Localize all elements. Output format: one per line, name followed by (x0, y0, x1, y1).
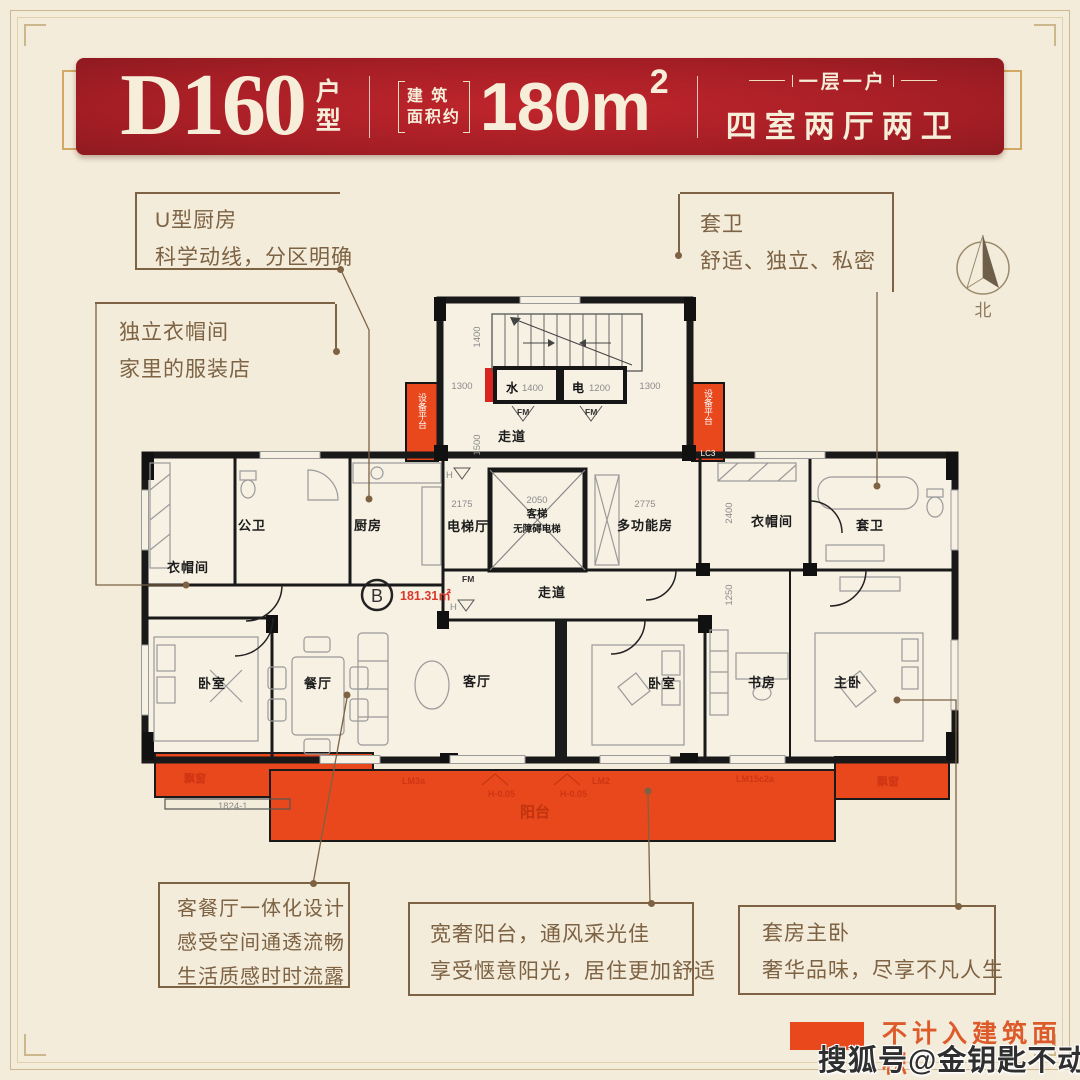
tagline-tick-right (893, 75, 894, 87)
room-elevator-hall: 电梯厅 (447, 519, 489, 534)
callout-kitchen-line1: U型厨房 (155, 202, 340, 239)
dim-1300b: 1300 (639, 381, 660, 392)
equip-right-label: 设备平台 (703, 389, 713, 426)
frame-corner-tr (1034, 24, 1056, 46)
equip-left-label: 设备平台 (417, 393, 427, 430)
room-study: 书房 (748, 675, 776, 690)
unit-model-suffix-char2: 型 (316, 107, 341, 136)
callout-living-dot (310, 880, 317, 887)
elec-shaft-dim: 1200 (589, 383, 610, 394)
room-bedroom-mid: 卧室 (648, 676, 676, 691)
banner-divider-1 (369, 76, 370, 138)
callout-living-line3: 生活质感时时流露 (177, 960, 348, 994)
callout-living: 客餐厅一体化设计 感受空间通透流畅 生活质感时时流露 (158, 882, 350, 988)
callout-master-dot (955, 903, 962, 910)
tagline-block: 一层一户 四室两厅两卫 (726, 67, 960, 146)
area-prefix-line2: 面积约 (407, 107, 461, 128)
lc3-mark: LC3 (701, 449, 716, 458)
lm2-mark: LM2 (592, 776, 610, 786)
unit-model: D160 (120, 66, 304, 147)
header-banner: D160 户 型 建 筑 面积约 180m 2 一层一户 四室两厅两卫 (76, 58, 1004, 155)
fm-mark-2: FM (585, 407, 597, 417)
hd-mark-1: H-0.05 (488, 789, 515, 799)
room-bath-ensuite: 套卫 (855, 518, 884, 533)
h-mark-1: H (446, 470, 453, 481)
room-living: 客厅 (463, 674, 491, 689)
room-elevator-line2: 无障碍电梯 (512, 523, 561, 535)
room-balcony: 阳台 (520, 803, 550, 821)
room-wardrobe-right: 衣帽间 (751, 514, 793, 529)
callout-balcony-line1: 宽奢阳台，通风采光佳 (430, 916, 692, 953)
dim-2050: 2050 (526, 495, 547, 506)
area-prefix-line1: 建 筑 (407, 86, 461, 107)
callout-kitchen: U型厨房 科学动线，分区明确 (135, 192, 340, 270)
fm-mark-1: FM (517, 407, 529, 417)
tagline-top: 一层一户 (742, 67, 944, 94)
water-shaft-label: 水 (506, 380, 519, 395)
floorplan-poster: D160 户 型 建 筑 面积约 180m 2 一层一户 四室两厅两卫 (0, 0, 1080, 1080)
tagline-bottom: 四室两厅两卫 (726, 101, 960, 146)
callout-balcony-line2: 享受惬意阳光，居住更加舒适 (430, 953, 692, 990)
callout-master-line1: 套房主卧 (762, 915, 994, 952)
callout-balcony: 宽奢阳台，通风采光佳 享受惬意阳光，居住更加舒适 (408, 902, 694, 996)
room-wardrobe-left: 衣帽间 (167, 560, 209, 575)
area-superscript: 2 (650, 63, 669, 102)
room-dining: 餐厅 (303, 676, 332, 691)
hd-mark-2: H-0.05 (560, 789, 587, 799)
compass-label: 北 (975, 301, 992, 320)
dim-2400: 2400 (724, 502, 735, 523)
callout-ensuite-line2: 舒适、独立、私密 (700, 243, 892, 280)
fm-mark-3: FM (462, 574, 474, 584)
frame-corner-tl (24, 24, 46, 46)
tagline-top-text: 一层一户 (799, 67, 887, 94)
banner-divider-2 (697, 76, 698, 138)
dim-2175: 2175 (451, 499, 472, 510)
lm15-mark: LM15c2a (736, 774, 775, 784)
room-corridor: 走道 (538, 585, 566, 600)
area-block: 建 筑 面积约 180m 2 (398, 73, 669, 141)
water-shaft-dim: 1400 (522, 383, 543, 394)
callout-ensuite-leftline (678, 194, 680, 254)
bay-right-label: 飘窗 (877, 774, 899, 788)
dim-1400: 1400 (472, 326, 483, 347)
tv-wall (555, 620, 567, 760)
callout-living-line2: 感受空间通透流畅 (177, 926, 348, 960)
unit-model-suffix: 户 型 (316, 78, 341, 136)
frame-corner-bl (24, 1034, 46, 1056)
area-prefix: 建 筑 面积约 (398, 81, 470, 133)
dim-1250: 1250 (724, 584, 735, 605)
bay-left-label: 飘窗 (184, 771, 206, 785)
callout-ensuite-dot (675, 252, 682, 259)
unit-model-suffix-char1: 户 (316, 78, 341, 107)
unit-mark-letter: B (371, 586, 383, 606)
tagline-tick-left (792, 75, 793, 87)
callout-kitchen-line2: 科学动线，分区明确 (155, 239, 340, 276)
callout-balcony-dot (648, 900, 655, 907)
callout-ensuite: 套卫 舒适、独立、私密 (680, 192, 894, 292)
floor-plan: B 181.31㎡ H H 水 1400 电 1200 1400 1500 13… (140, 285, 960, 865)
elec-shaft-label: 电 (572, 380, 584, 395)
callout-master-line2: 奢华品味，尽享不凡人生 (762, 952, 994, 989)
h-mark-2: H (450, 602, 457, 613)
dim-1500: 1500 (472, 434, 483, 455)
unit-area-text: 181.31㎡ (400, 588, 451, 603)
shaft-red-block (485, 368, 494, 402)
tagline-line-right (901, 80, 937, 81)
watermark: 搜狐号@金钥匙不动产 (818, 1037, 1080, 1079)
callout-kitchen-dot (337, 266, 344, 273)
callout-living-line1: 客餐厅一体化设计 (177, 892, 348, 926)
room-multi: 多功能房 (617, 518, 673, 533)
room-master: 主卧 (834, 675, 862, 690)
room-bath-public: 公卫 (238, 518, 266, 533)
room-corridor-top: 走道 (498, 429, 526, 444)
room-elevator-line1: 客梯 (526, 507, 548, 520)
dim-1824: 1824-1 (218, 801, 248, 812)
dim-2775: 2775 (634, 499, 655, 510)
room-bedroom-left: 卧室 (198, 676, 226, 691)
dim-1300a: 1300 (451, 381, 472, 392)
room-kitchen: 厨房 (354, 518, 382, 533)
lm3a-mark: LM3a (402, 776, 426, 786)
tagline-line-left (749, 80, 785, 81)
area-value: 180m (480, 73, 650, 141)
callout-master: 套房主卧 奢华品味，尽享不凡人生 (738, 905, 996, 995)
callout-ensuite-line1: 套卫 (700, 206, 892, 243)
